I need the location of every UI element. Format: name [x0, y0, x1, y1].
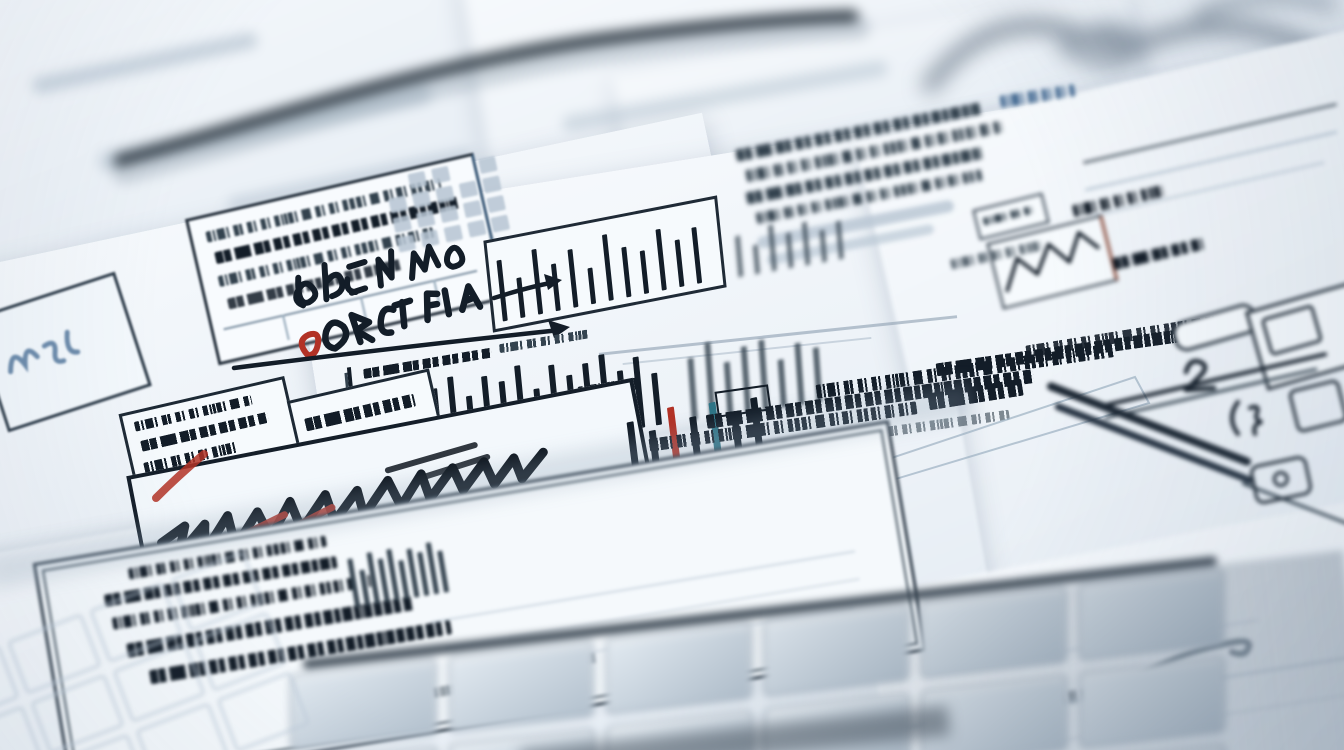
histogram-block [439, 205, 459, 223]
bracket-squiggle [1226, 400, 1270, 444]
chip-sketch [1261, 304, 1324, 356]
bar-stroke [819, 230, 827, 263]
bar-stroke [655, 229, 666, 291]
histogram-block [482, 175, 502, 193]
histogram-block [408, 171, 428, 189]
bar-stroke [691, 227, 702, 284]
histogram-block [478, 156, 498, 174]
bar-stroke [621, 246, 631, 297]
histogram-block [459, 180, 479, 198]
lock-keyhole [1271, 470, 1290, 489]
grid-cell [290, 658, 437, 750]
bar-stroke [602, 234, 614, 301]
barcode-strokes [347, 539, 459, 608]
bar-stroke [786, 233, 794, 269]
bar-stroke [753, 244, 760, 274]
bar-stroke [802, 221, 811, 265]
bar-stroke [398, 560, 409, 599]
grid-cell [447, 640, 594, 733]
bar-stroke [640, 250, 649, 294]
bar-stroke [359, 569, 370, 606]
red-pen-stroke [152, 442, 242, 506]
wireframe-sketch-photo [0, 0, 1344, 750]
annotation-arrow [492, 272, 572, 304]
histogram-block [486, 195, 506, 213]
blue-scribble [0, 296, 123, 400]
histogram-block [412, 190, 432, 208]
bar-stroke [836, 221, 844, 260]
bar-stroke [675, 240, 685, 288]
bar-stroke [437, 551, 449, 593]
histogram-block [431, 166, 451, 184]
histogram-block [388, 195, 408, 213]
histogram-block [435, 185, 455, 203]
histogram-block [416, 210, 436, 228]
histogram-block [463, 200, 483, 218]
bar-stroke [768, 224, 777, 271]
scribble-row [983, 206, 1033, 226]
histogram-block [392, 215, 412, 233]
